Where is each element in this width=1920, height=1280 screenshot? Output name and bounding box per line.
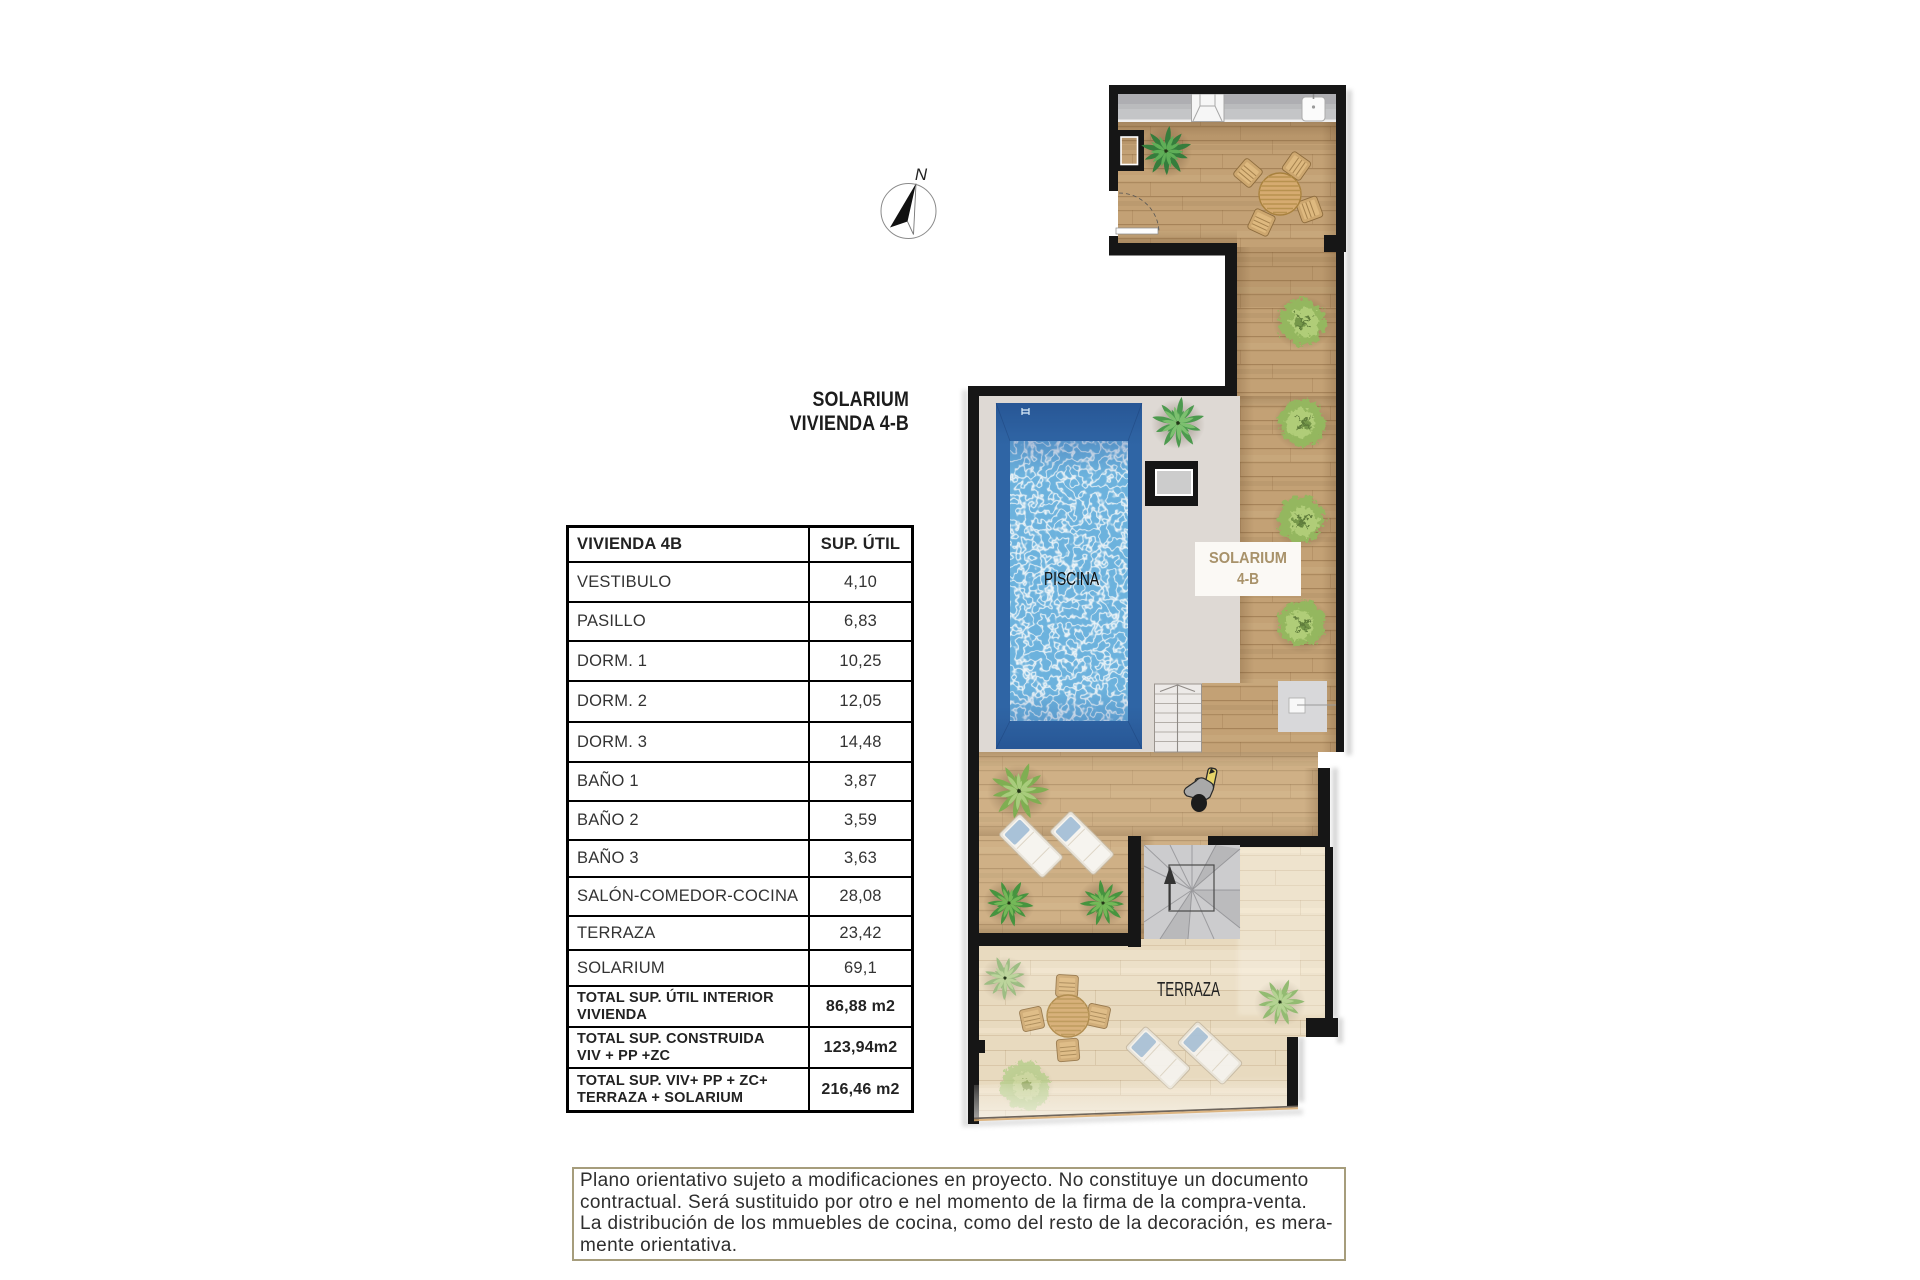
svg-text:SOLARIUM: SOLARIUM [1209,550,1287,567]
svg-text:TERRAZA: TERRAZA [1157,979,1220,1001]
svg-text:4-B: 4-B [1237,571,1259,588]
svg-text:PISCINA: PISCINA [1044,569,1099,589]
